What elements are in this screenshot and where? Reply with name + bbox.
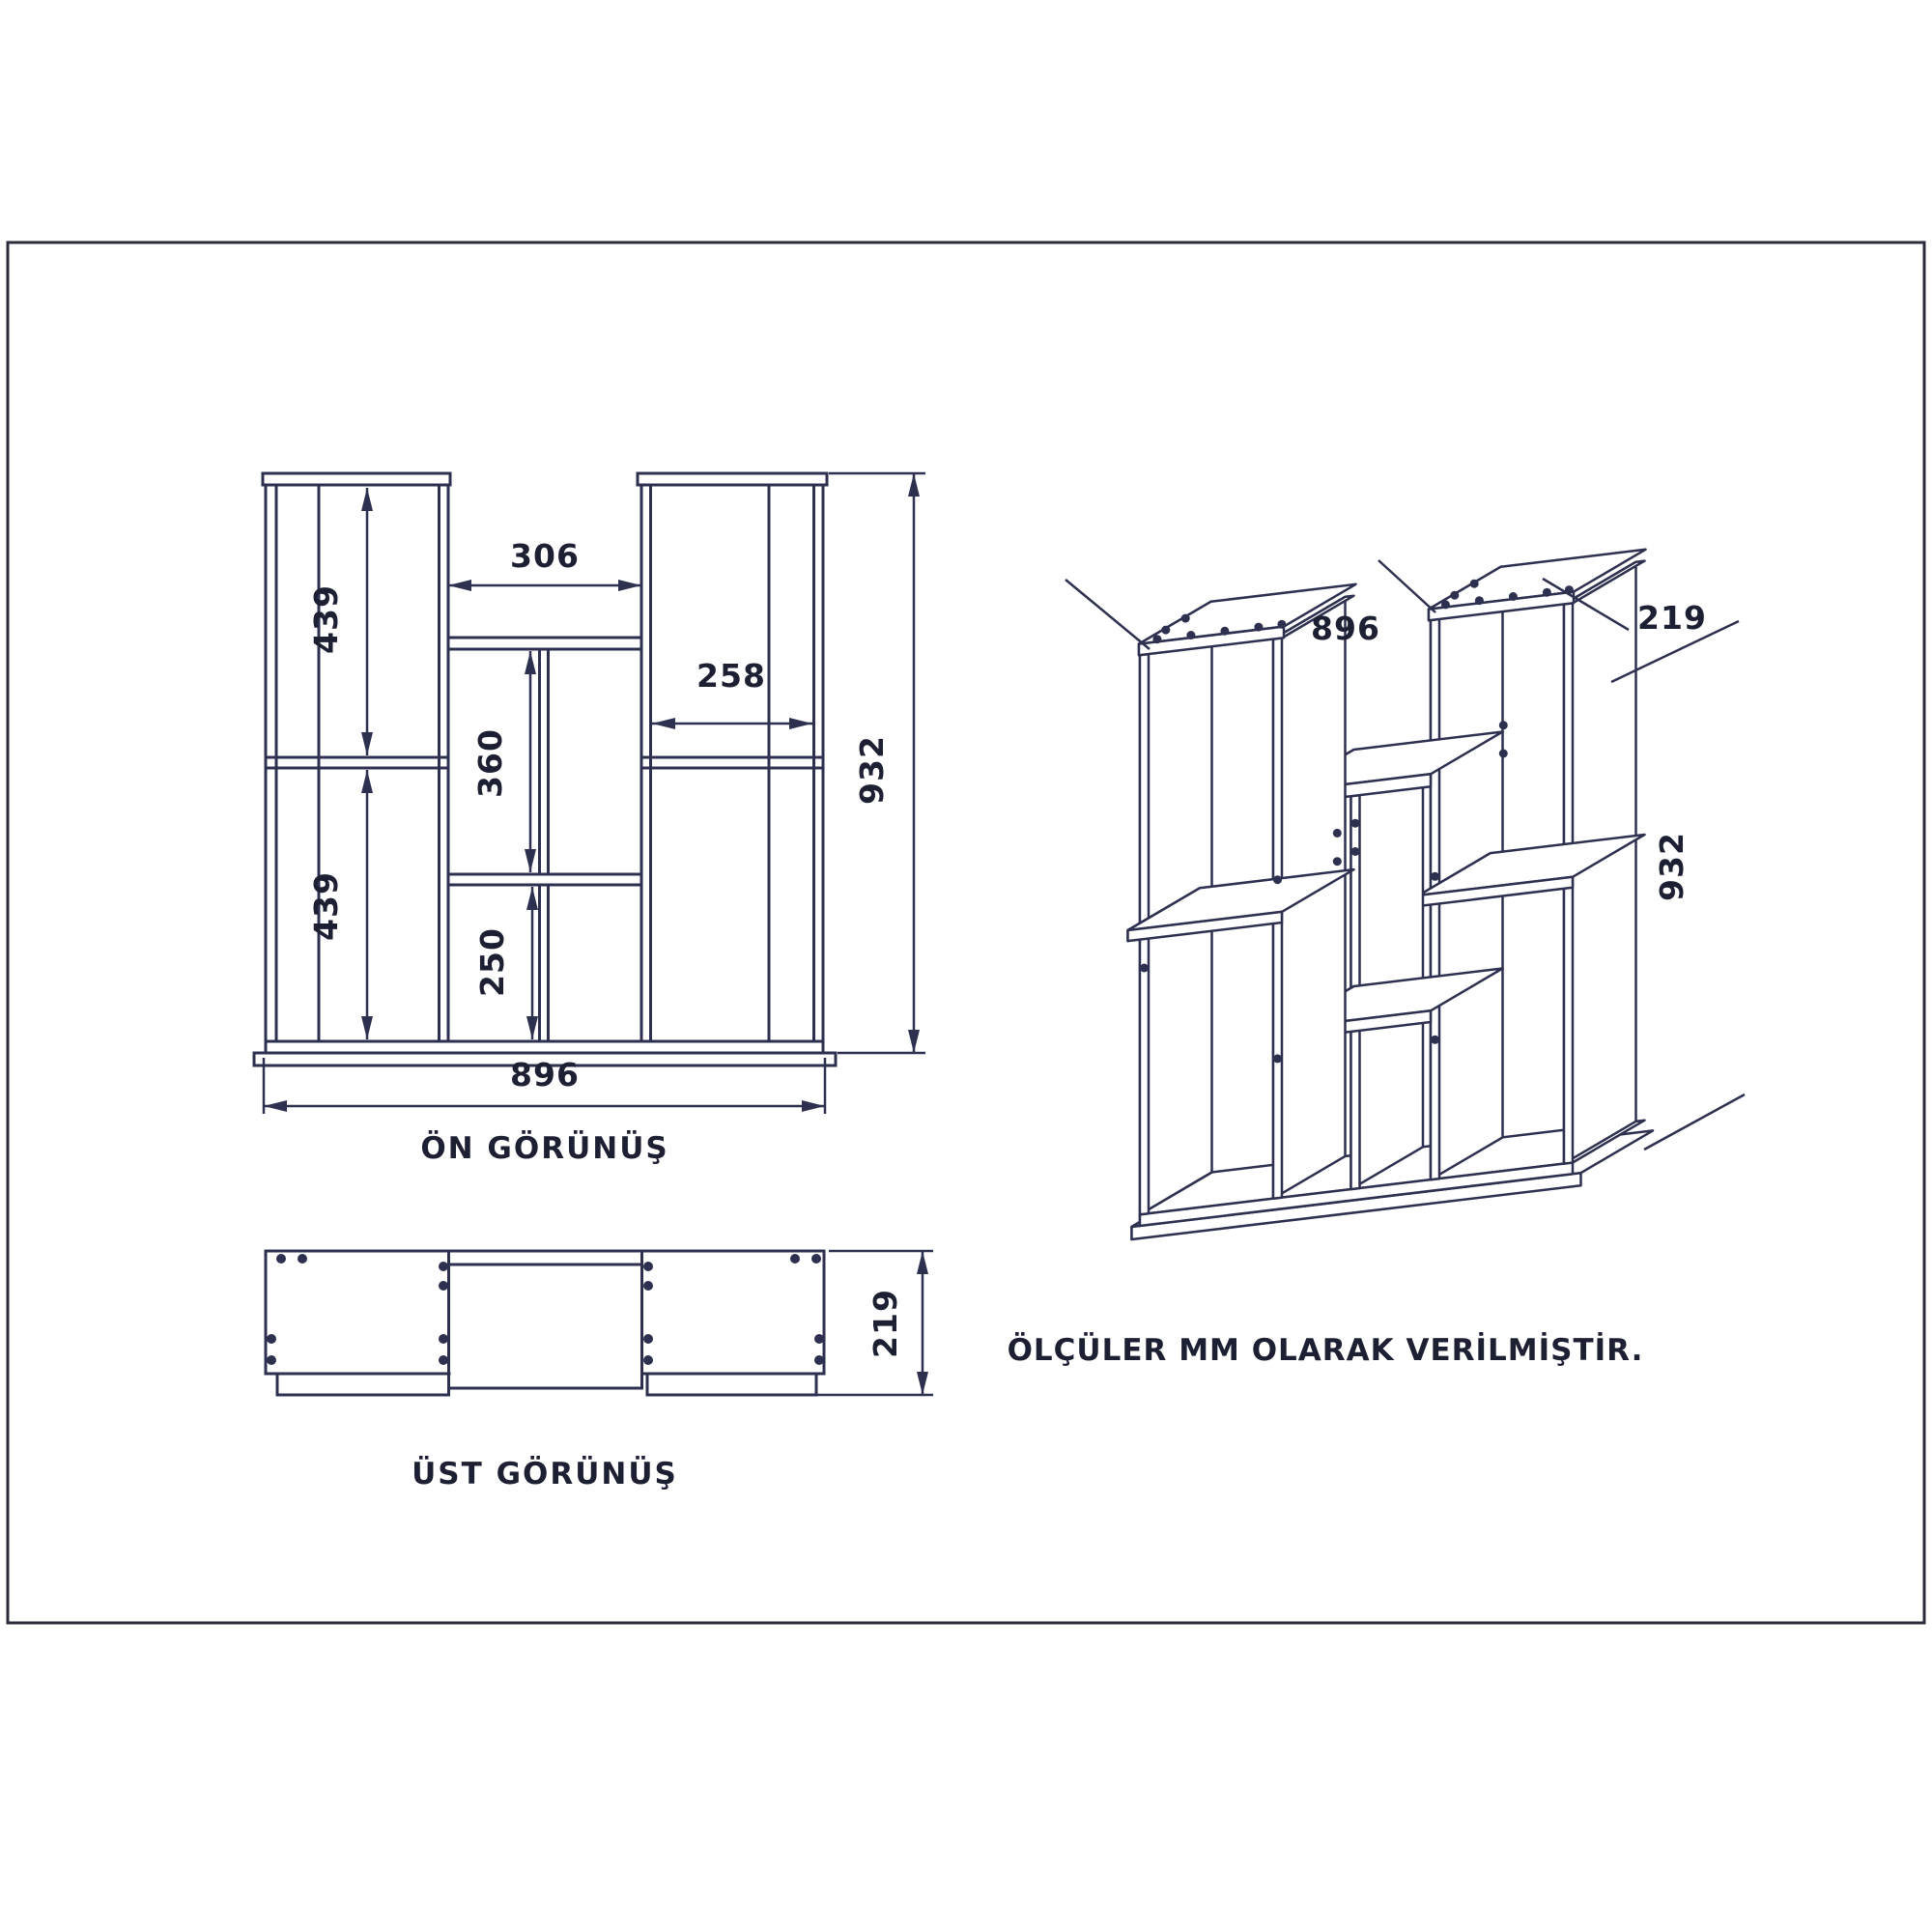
iso-screw-hole	[1152, 635, 1161, 643]
top-view-dimensions: 219	[816, 1251, 933, 1395]
iso-screw-hole	[1431, 1036, 1439, 1044]
iso-screw-hole	[1509, 592, 1518, 601]
front-view: 439 439 306 360 250 258 896 932 ÖN G	[254, 473, 925, 1166]
dim-middle-top: 306	[510, 537, 580, 575]
iso-screw-hole	[1441, 600, 1450, 609]
top-view: 219 ÜST GÖRÜNÜŞ	[266, 1251, 933, 1492]
iso-screw-hole	[1351, 847, 1360, 856]
dim-upper-left: 439	[307, 584, 345, 654]
top-view-title: ÜST GÖRÜNÜŞ	[412, 1456, 678, 1492]
iso-dim-height: 932	[1653, 832, 1690, 901]
front-view-dimensions: 439 439 306 360 250 258 896 932	[264, 473, 925, 1114]
iso-screw-hole	[1543, 588, 1551, 597]
top-view-structure	[266, 1251, 824, 1395]
iso-screw-hole	[1181, 614, 1190, 623]
iso-screw-hole	[1499, 750, 1508, 758]
iso-screw-hole	[1333, 857, 1342, 866]
iso-screw-hole	[1273, 1054, 1282, 1063]
iso-dim-width: 896	[1311, 610, 1380, 647]
dim-lower-left: 439	[307, 871, 345, 941]
iso-dim-depth: 219	[1637, 599, 1707, 637]
units-note: ÖLÇÜLER MM OLARAK VERİLMİŞTİR.	[1008, 1332, 1644, 1368]
dim-right-shelf: 258	[696, 657, 766, 695]
iso-screw-hole	[1450, 591, 1459, 600]
iso-screw-hole	[1351, 819, 1360, 828]
drawing-canvas: 439 439 306 360 250 258 896 932 ÖN G	[0, 0, 1932, 1932]
iso-screw-hole	[1470, 580, 1479, 588]
dim-overall-height: 932	[853, 735, 891, 805]
iso-screw-hole	[1333, 829, 1342, 838]
iso-screw-hole	[1277, 620, 1286, 629]
iso-screw-hole	[1499, 721, 1508, 729]
dim-overall-width: 896	[510, 1056, 580, 1094]
iso-screw-hole	[1254, 623, 1263, 632]
dim-middle-mid: 360	[471, 728, 509, 798]
iso-board-face	[1351, 753, 1424, 1189]
iso-screw-hole	[1273, 875, 1282, 884]
top-view-screw-holes	[267, 1254, 824, 1365]
iso-screw-hole	[1220, 627, 1229, 636]
iso-screw-hole	[1140, 964, 1149, 973]
iso-screw-hole	[1431, 872, 1439, 881]
perspective-view-structure	[1128, 550, 1654, 1239]
technical-drawing-page: 439 439 306 360 250 258 896 932 ÖN G	[0, 0, 1932, 1932]
dim-middle-bottom: 250	[473, 927, 511, 997]
iso-screw-hole	[1186, 631, 1195, 639]
iso-screw-hole	[1161, 626, 1170, 635]
front-view-title: ÖN GÖRÜNÜŞ	[420, 1130, 668, 1166]
iso-screw-hole	[1475, 596, 1484, 605]
dim-depth: 219	[867, 1289, 904, 1358]
